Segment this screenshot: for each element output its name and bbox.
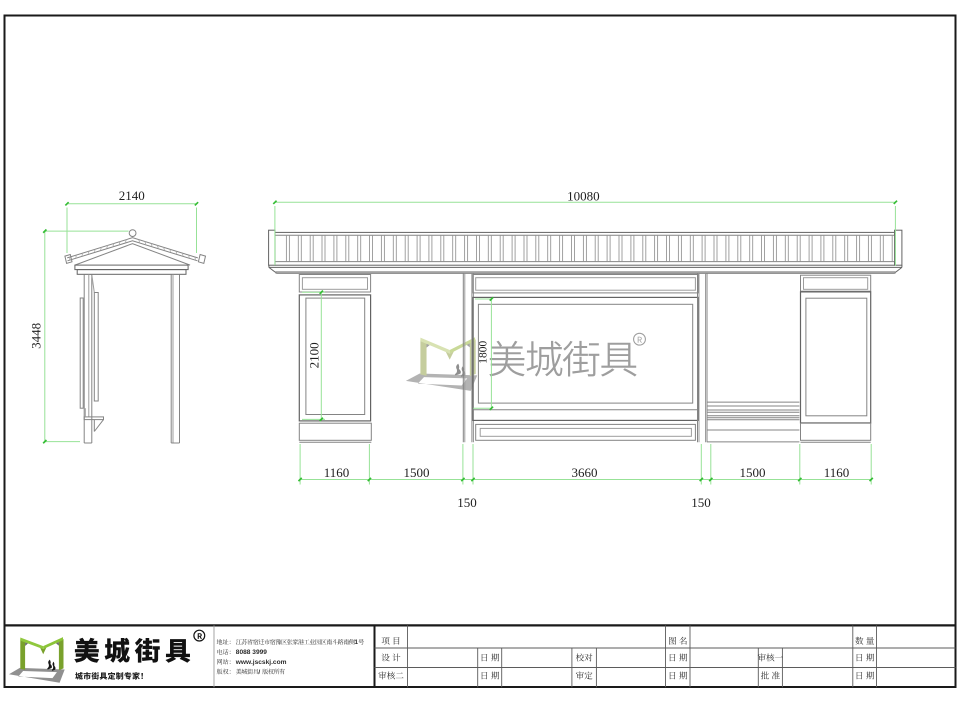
svg-text:150: 150 bbox=[457, 495, 477, 510]
svg-text:1500: 1500 bbox=[740, 465, 766, 480]
svg-text:3448: 3448 bbox=[28, 323, 43, 349]
svg-text:2140: 2140 bbox=[119, 188, 145, 203]
svg-text:/: / bbox=[258, 669, 260, 676]
svg-text:3660: 3660 bbox=[572, 465, 598, 480]
svg-text:150: 150 bbox=[691, 495, 711, 510]
svg-text:1160: 1160 bbox=[824, 465, 850, 480]
svg-text:1800: 1800 bbox=[477, 341, 489, 364]
svg-text:2100: 2100 bbox=[307, 342, 322, 368]
svg-text:1: 1 bbox=[354, 639, 358, 646]
svg-text:www.jscskj.com: www.jscskj.com bbox=[235, 659, 287, 666]
svg-text:1160: 1160 bbox=[324, 465, 350, 480]
svg-text:10080: 10080 bbox=[567, 189, 600, 204]
svg-text:8088 3999: 8088 3999 bbox=[236, 649, 268, 656]
svg-text:1500: 1500 bbox=[404, 465, 430, 480]
